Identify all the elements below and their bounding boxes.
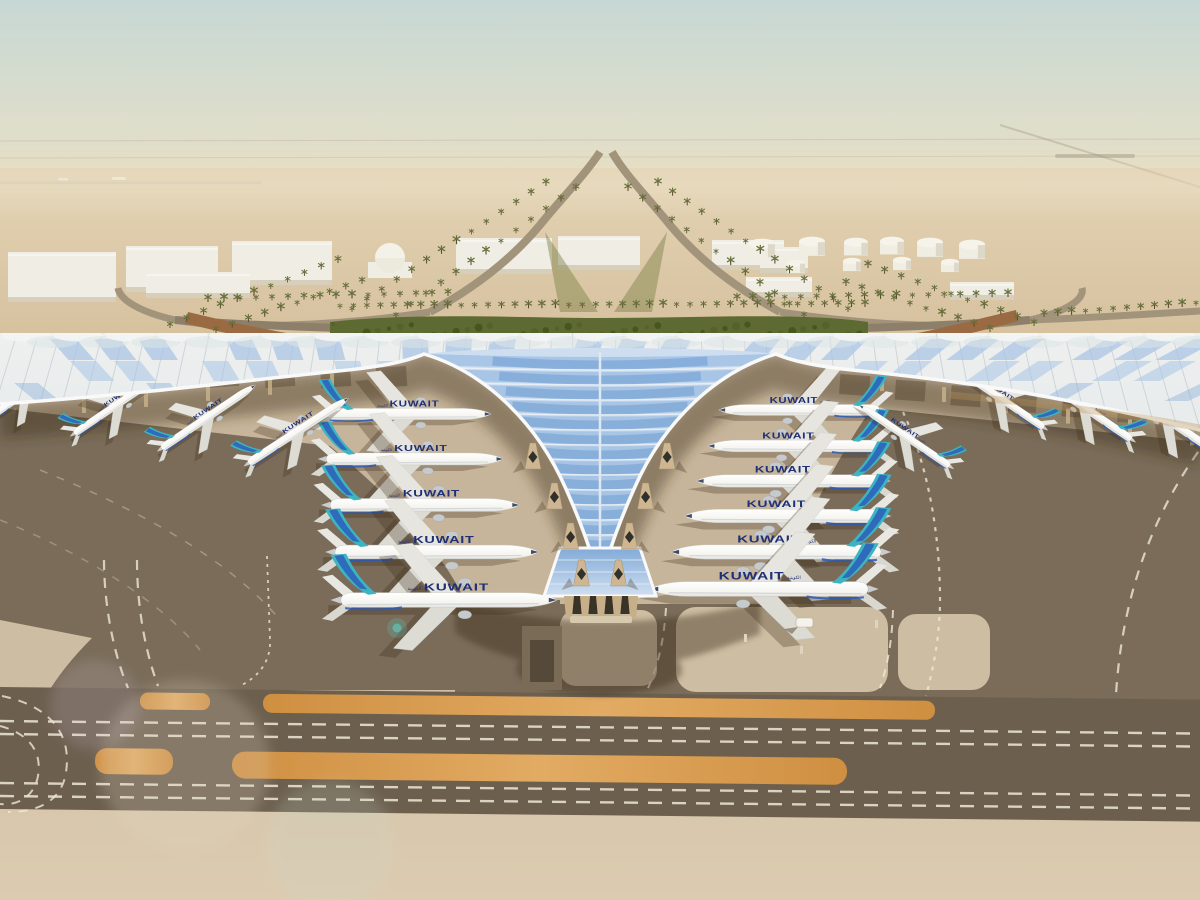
flare-violet [50, 660, 140, 750]
livery-script: الكويتية [787, 575, 801, 580]
scene-canvas: KUWAITالكويتيةKUWAITالكويتيةKUWAITالكويت… [0, 0, 1200, 900]
storage-tank [880, 237, 904, 255]
livery-title: KUWAIT [719, 570, 785, 582]
horizon-haze [0, 150, 1200, 220]
livery-title: KUWAIT [403, 489, 460, 499]
storage-tank [799, 237, 825, 256]
livery-script: الكويتية [389, 493, 401, 497]
service-van [796, 618, 813, 627]
livery-title: KUWAIT [413, 535, 474, 546]
livery-title: KUWAIT [770, 396, 818, 405]
airport-aerial-rendering: Aerial rendering of Kuwait International… [0, 0, 1200, 900]
bollard-2 [875, 620, 878, 628]
livery-title: KUWAIT [424, 581, 489, 593]
storage-tank [959, 240, 985, 259]
livery-script: الكويتية [398, 539, 411, 544]
bollard-3 [800, 646, 803, 654]
warehouse [8, 252, 116, 302]
livery-title: KUWAIT [390, 400, 440, 409]
storage-tank [843, 258, 861, 271]
storage-tank [893, 257, 911, 270]
livery-script: الكويتية [377, 403, 387, 407]
storage-tank [917, 238, 943, 257]
service-pit [522, 626, 562, 690]
livery-script: الكويتية [381, 448, 392, 452]
livery-script: الكويتية [408, 586, 421, 591]
livery-title: KUWAIT [747, 499, 807, 510]
warehouse [456, 238, 552, 274]
livery-title: KUWAIT [762, 430, 815, 440]
tip-canopy-slab [570, 616, 632, 623]
storage-tank [941, 259, 959, 272]
apron-island-3 [898, 614, 990, 690]
warehouse [558, 236, 640, 270]
bollard-1 [744, 634, 747, 642]
storage-tank [844, 238, 868, 256]
livery-title: KUWAIT [394, 443, 448, 453]
flare-teal-dot [393, 624, 402, 633]
livery-title: KUWAIT [755, 465, 811, 475]
